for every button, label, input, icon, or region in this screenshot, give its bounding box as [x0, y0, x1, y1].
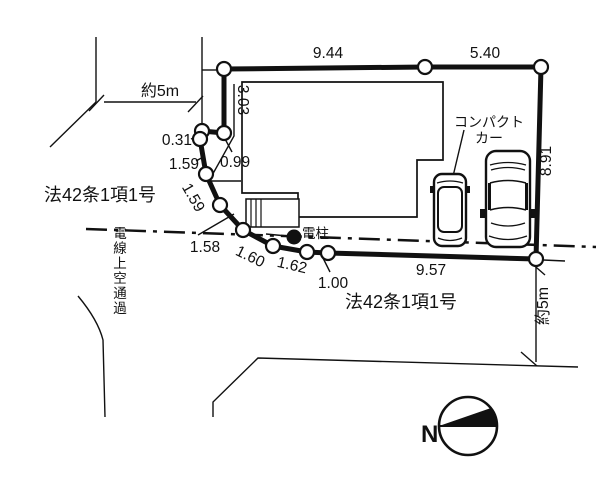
boundary-point	[534, 60, 548, 74]
dim-tick	[188, 96, 203, 112]
compact-car-label-line2: カー	[475, 130, 503, 146]
dim-label-9-44: 9.44	[313, 45, 344, 62]
road-width-label-west: 約5m	[141, 82, 179, 100]
road-edge-south	[213, 358, 578, 417]
boundary-point	[266, 239, 280, 253]
site-plan-diagram: N 9.44 5.40 8.91 3.03 0.31 1.59 0.99 1.5…	[0, 0, 600, 501]
north-compass: N	[421, 397, 497, 455]
leader-utility-pole	[266, 234, 287, 236]
road-corner-cut	[50, 102, 96, 147]
building-footprint	[242, 82, 443, 217]
entrance-porch	[246, 199, 299, 227]
compact-car-label-line1: コンパクト	[454, 114, 524, 130]
sedan-car	[480, 151, 536, 247]
utility-pole-label: 電柱	[302, 226, 329, 241]
car-body	[486, 151, 530, 247]
power-line-note: 電線上空通過	[108, 226, 128, 316]
site-plan-canvas: N 9.44 5.40 8.91 3.03 0.31 1.59 0.99 1.5…	[0, 0, 600, 501]
boundary-point	[236, 223, 250, 237]
boundary-point	[217, 126, 231, 140]
road-law-label-south: 法42条1項1号	[345, 292, 457, 312]
boundary-point	[529, 252, 543, 266]
boundary-point	[213, 198, 227, 212]
dim-label-1-58: 1.58	[190, 239, 220, 256]
road-law-label-west: 法42条1項1号	[44, 185, 156, 205]
boundary-point	[300, 245, 314, 259]
dim-label-1-00: 1.00	[318, 275, 349, 292]
dim-label-8-91: 8.91	[538, 146, 555, 176]
boundary-point	[418, 60, 432, 74]
boundary-point	[217, 62, 231, 76]
boundary-point	[321, 246, 335, 260]
boundary-point	[199, 167, 213, 181]
dim-label-5-40: 5.40	[470, 45, 501, 62]
dim-label-1-59-upper: 1.59	[169, 156, 199, 173]
dim-label-0-31: 0.31	[162, 132, 192, 149]
compact-car	[430, 174, 470, 246]
dim-tick	[521, 352, 537, 366]
boundary-point	[193, 132, 207, 146]
utility-pole-dot	[287, 230, 302, 245]
dim-label-1-60: 1.60	[233, 243, 268, 272]
road-edge-southwest-curve	[78, 296, 105, 417]
dim-label-0-99: 0.99	[220, 154, 250, 171]
corner-extension-line	[543, 260, 565, 261]
road-width-label-south: 約5m	[534, 287, 552, 325]
dim-label-1-59-lower: 1.59	[178, 180, 208, 215]
dim-label-9-57: 9.57	[416, 262, 446, 279]
porch-outline	[246, 199, 299, 227]
dim-label-3-03: 3.03	[234, 85, 251, 115]
north-label: N	[421, 421, 438, 448]
